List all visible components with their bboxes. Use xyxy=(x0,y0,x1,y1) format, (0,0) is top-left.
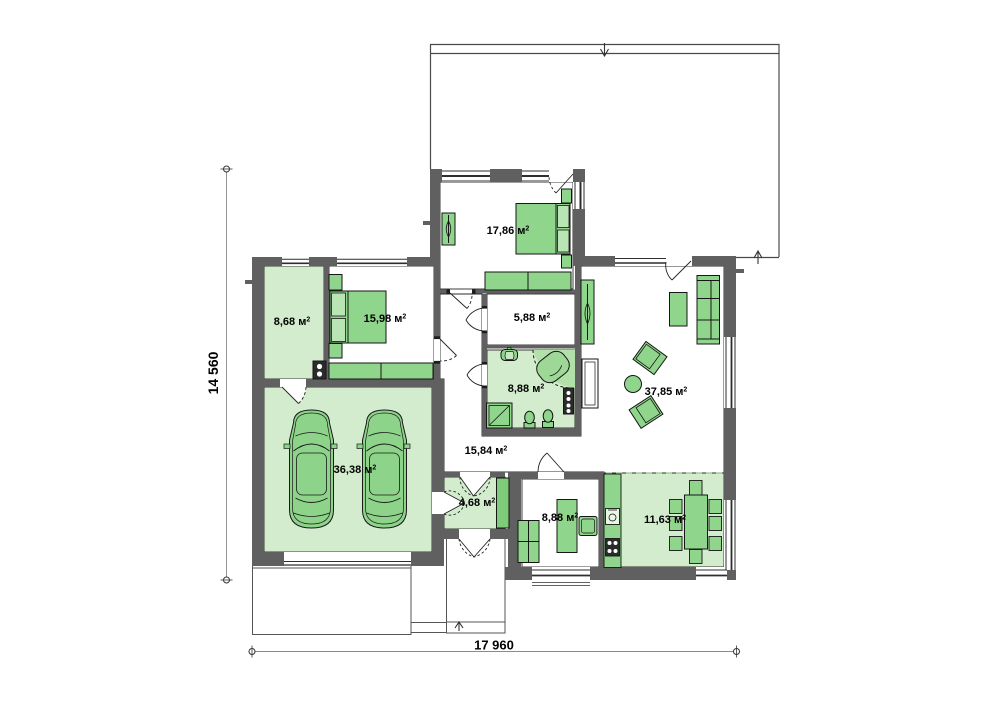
svg-text:37,85 м2: 37,85 м2 xyxy=(645,386,688,398)
svg-text:5,88 м2: 5,88 м2 xyxy=(514,312,551,324)
svg-text:8,88 м2: 8,88 м2 xyxy=(542,512,579,524)
svg-text:15,84 м2: 15,84 м2 xyxy=(465,445,508,457)
svg-text:8,68 м2: 8,68 м2 xyxy=(274,316,311,328)
svg-text:4,68 м2: 4,68 м2 xyxy=(459,497,496,509)
svg-text:11,63 м2: 11,63 м2 xyxy=(644,514,686,526)
svg-text:17,86 м2: 17,86 м2 xyxy=(487,225,530,237)
svg-text:14 560: 14 560 xyxy=(205,351,221,394)
svg-text:17 960: 17 960 xyxy=(474,638,514,653)
svg-text:15,98 м2: 15,98 м2 xyxy=(364,313,407,325)
svg-text:8,88 м2: 8,88 м2 xyxy=(508,383,545,395)
svg-text:36,38 м2: 36,38 м2 xyxy=(334,464,377,476)
